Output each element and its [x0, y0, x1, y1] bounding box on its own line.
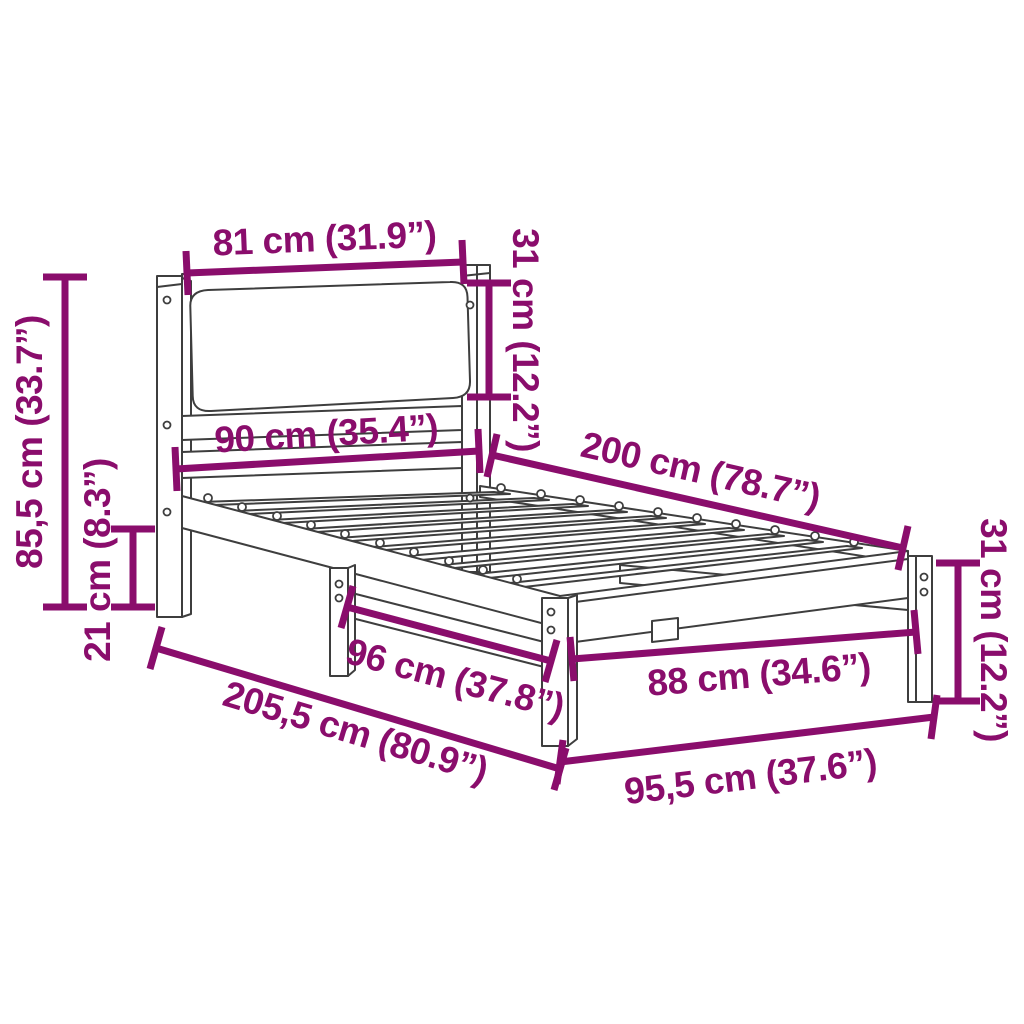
screw-hole-icon	[164, 422, 171, 429]
slat-hook-icon	[537, 490, 545, 498]
slat-hook-icon	[771, 526, 779, 534]
dim-label-headboard-total-height: 85,5 cm (33.7”)	[9, 315, 50, 569]
slat-hook-icon	[341, 530, 349, 538]
headboard-cushion	[190, 282, 470, 411]
dimension-diagram-page: 81 cm (31.9”) 31 cm (12.2”) 90 cm (35.4”…	[0, 0, 1024, 1024]
slat-hook-icon	[811, 532, 819, 540]
slat-hook-icon	[479, 566, 487, 574]
slat-hook-icon	[576, 496, 584, 504]
dimension-headboard-total-height: 85,5 cm (33.7”)	[9, 277, 87, 607]
screw-hole-icon	[336, 595, 343, 602]
slat-hook-icon	[204, 494, 212, 502]
dim-label-foot-inner-width: 88 cm (34.6”)	[646, 645, 872, 703]
screw-hole-icon	[921, 589, 928, 596]
slat-hook-icon	[513, 575, 521, 583]
screw-hole-icon	[164, 509, 171, 516]
screw-hole-icon	[548, 609, 555, 616]
bed-dimension-diagram: 81 cm (31.9”) 31 cm (12.2”) 90 cm (35.4”…	[0, 0, 1024, 1024]
headboard-left-post-side	[182, 278, 191, 617]
slat-hook-icon	[497, 484, 505, 492]
dim-label-headboard-width: 81 cm (31.9”)	[212, 214, 437, 264]
slat-hook-icon	[238, 503, 246, 511]
screw-hole-icon	[921, 574, 928, 581]
slat-hook-icon	[376, 539, 384, 547]
slat-hook-icon	[273, 512, 281, 520]
slat-hook-icon	[615, 502, 623, 510]
screw-hole-icon	[336, 581, 343, 588]
screw-hole-icon	[548, 627, 555, 634]
dim-label-foot-end-height: 31 cm (12.2”)	[973, 518, 1014, 742]
slat-hook-icon	[445, 557, 453, 565]
screw-hole-icon	[467, 302, 474, 309]
screw-hole-icon	[467, 495, 474, 502]
slat-hook-icon	[654, 508, 662, 516]
slat-hook-icon	[410, 548, 418, 556]
slat-hook-icon	[693, 514, 701, 522]
foot-rail-center-tab	[652, 618, 678, 642]
dimension-total-width-foot: 95,5 cm (37.6”)	[557, 695, 937, 812]
dim-label-underbed-clearance: 21 cm (8.3”)	[77, 458, 118, 662]
dimension-foot-end-height: 31 cm (12.2”)	[936, 518, 1014, 742]
slat-hook-icon	[307, 521, 315, 529]
slat-hook-icon	[732, 520, 740, 528]
dimension-underbed-clearance: 21 cm (8.3”)	[77, 458, 155, 662]
dim-label-headboard-panel-height: 31 cm (12.2”)	[505, 228, 546, 452]
screw-hole-icon	[164, 297, 171, 304]
headboard-left-post	[157, 276, 182, 617]
